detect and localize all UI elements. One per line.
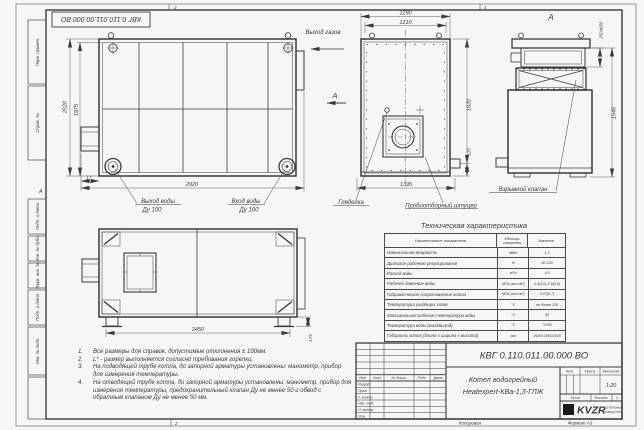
sampling-point-mark: [416, 106, 424, 114]
tech-cell-name: Диапазон рабочего регулирования: [385, 258, 497, 267]
company-logo-mark: [563, 404, 574, 415]
side-label: Справ. №: [35, 113, 40, 133]
label-gas-out: Выход газов: [306, 30, 341, 36]
view-front: [361, 30, 460, 182]
dim-front-width: 1395: [400, 182, 413, 188]
tech-row: Рабочее давление воды МПа (кгс/см²) 0,3(…: [385, 278, 565, 288]
side-label: Инв. № дубл.: [35, 235, 40, 261]
sheets-value: 1: [616, 395, 618, 400]
tech-cell-name: Габариты котла (длина х ширина х высота): [385, 331, 497, 340]
tech-cell-unit: °С: [497, 321, 528, 330]
burner-flange: [81, 127, 99, 151]
view-side: [82, 229, 305, 327]
tech-cell-name: Рабочее давление воды: [385, 279, 497, 288]
tech-table-title: Техническая характеристика: [384, 221, 564, 230]
dim-front-top-outer: 1290: [399, 11, 412, 17]
dim-burner-length: L*: [87, 176, 93, 182]
note-item: 1. Все размеры для справок, допустимые о…: [74, 349, 352, 357]
tech-cell-name: Температура уходящих газов: [385, 300, 497, 309]
dim-valve-size: 250х600: [599, 21, 604, 40]
dim-front-top-inner: 1210: [399, 20, 412, 26]
tech-row: Температура уходящих газов °С не более 2…: [385, 299, 565, 309]
role-utv: Утв.: [358, 414, 366, 418]
col-docnum: № докум.: [392, 376, 407, 380]
tech-table: Наименование показателя Единицы измерени…: [384, 233, 566, 342]
tech-cell-value: 2920х1395х2020: [528, 331, 565, 340]
sight-glass: [385, 108, 390, 113]
doc-name-line2: Heatexpert-КВа-1,3-ГЛЖ: [463, 387, 544, 396]
lit-label: Лит.: [565, 369, 574, 373]
doc-number: КВГ 0.110.011.00.000 ВО: [480, 351, 589, 362]
tech-header-name: Наименование показателя: [385, 234, 496, 247]
view-rear: [81, 33, 304, 176]
dim-side-length: 2450: [191, 327, 205, 333]
dim-front-height: 1820: [467, 98, 473, 111]
support-leg: [102, 317, 294, 327]
corner-bolt: [107, 42, 294, 54]
tech-cell-unit: МВт: [497, 248, 528, 257]
tech-cell-unit: м³/ч: [497, 269, 528, 278]
tech-row: Максимальная рабочая температура воды °С…: [385, 309, 565, 319]
explosion-valve: [516, 68, 586, 90]
section-title: А: [547, 13, 553, 22]
label-sight-glass: Гляделка: [338, 200, 364, 206]
tech-cell-value: не более 220: [528, 300, 565, 309]
dim-rear-height-outer: 2020: [63, 100, 69, 114]
tech-cell-name: Максимальная рабочая температура воды: [385, 310, 497, 319]
tech-row: Гидравлическое сопротивление котла МПа (…: [385, 289, 565, 299]
lifting-lug: [437, 33, 442, 38]
tech-cell-name: Расход воды: [385, 269, 497, 278]
lifting-lug: [579, 33, 584, 38]
tech-cell-unit: °С: [497, 310, 528, 319]
tech-header-row: Наименование показателя Единицы измерени…: [385, 234, 565, 247]
corner-gusset: [102, 232, 294, 314]
flue-outlet: [296, 51, 304, 90]
col-izm: Изм.: [359, 376, 366, 380]
tech-cell-name: Номинальная мощность: [385, 248, 497, 257]
lifting-lug: [108, 33, 114, 39]
scale-value: 1:20: [606, 383, 618, 389]
tech-cell-value: 0,3(3,0)-0,6(6,0): [528, 279, 565, 288]
tech-cell-unit: МПа (кгс/см²): [497, 279, 528, 288]
note-text: На отводящей трубе котла, до запорной ар…: [93, 380, 352, 403]
view-arrow-letter: А: [331, 91, 337, 100]
note-item: 3. На подводящей трубе котла, до запорно…: [74, 364, 352, 379]
role-labels: Разраб. Пров. Т. контр. Нач. отд. Н. кон…: [358, 383, 374, 419]
rear-collector: [297, 238, 305, 309]
zone-mark-bottom: 2: [174, 421, 178, 426]
note-number: 2.: [74, 357, 93, 365]
note-text: Все размеры для справок, допустимые откл…: [93, 349, 352, 357]
tech-row: Диапазон рабочего регулирования % 40-100: [385, 257, 565, 267]
tech-row: Температура воды (вход/выход) °С 70/95: [385, 320, 565, 330]
tech-cell-value: 95: [528, 310, 565, 319]
note-number: 4.: [74, 380, 93, 403]
burner-door: [383, 116, 423, 157]
sheet-label: Лист: [570, 396, 580, 400]
tech-cell-unit: мм: [497, 331, 528, 340]
view-section: [496, 33, 592, 177]
doc-name-line1: Котел водогрейный: [469, 375, 537, 384]
tech-header-value: Значение: [527, 234, 564, 247]
format-label: Формат А3: [568, 421, 593, 426]
role-nkontr: Н. контр.: [358, 408, 374, 412]
scale-label: Масштаб: [603, 369, 621, 373]
lifting-lug: [370, 33, 375, 38]
stamp-number: КВГ 0.110.011.00.000 ВО: [60, 15, 140, 22]
label-explosion-valve: Взрывной клапан: [499, 186, 548, 193]
tech-cell-name: Температура воды (вход/выход): [385, 321, 497, 330]
label-water-out: Выход воды: [141, 199, 175, 205]
tech-row: Номинальная мощность МВт 1,3: [385, 247, 565, 257]
burner-flange-side: [82, 259, 99, 282]
company-line1: КОТЕЛЬНЫЙ: [604, 406, 624, 410]
label-sampling: Пробоотборный штуцер: [405, 202, 477, 209]
dim-rear-width: 2920: [185, 182, 199, 188]
note-number: 3.: [74, 364, 93, 379]
tech-row: Габариты котла (длина х ширина х высота)…: [385, 330, 565, 340]
tech-cell-value: 1,3: [528, 248, 565, 257]
label-water-in: Вход воды: [231, 199, 261, 205]
notes-list: 1. Все размеры для справок, допустимые о…: [74, 349, 352, 403]
dim-side-base: 175: [308, 334, 313, 342]
dim-rear-height-inner: 1975: [74, 103, 80, 116]
note-item: 4. На отводящей трубе котла, до запорной…: [74, 380, 352, 403]
access-door: [124, 253, 156, 292]
tech-cell-unit: %: [497, 258, 528, 267]
tech-cell-name: Гидравлическое сопротивление котла: [385, 290, 497, 299]
side-label: Перв. примен.: [35, 38, 40, 67]
col-list: Лист: [372, 376, 382, 380]
role-tkontr: Т. контр.: [358, 395, 374, 399]
mass-label: Масса: [585, 369, 596, 373]
tech-cell-unit: МПа (кгс/см²): [497, 290, 528, 299]
dim-section-height: 1540: [612, 106, 618, 119]
valve-leader: [489, 80, 576, 193]
side-label: Инв. № подл.: [35, 338, 40, 365]
tech-cell-value: 4,5: [528, 269, 565, 278]
company-line2: ЗАВОД РЭП: [604, 410, 622, 414]
zone-mark-top-left: 2: [173, 5, 177, 10]
role-nachotd: Нач. отд.: [358, 402, 374, 406]
label-water-out-dn: Ду 100: [142, 208, 163, 214]
label-water-in-dn: Ду 100: [239, 208, 260, 214]
pipe-stub: [496, 158, 508, 167]
zone-letter-left: А: [38, 189, 43, 195]
company-logo-text: KVZR: [577, 405, 606, 417]
tech-row: Расход воды м³/ч 4,5: [385, 268, 565, 278]
tech-header-unit: Единицы измерения: [496, 234, 527, 247]
water-flange: [105, 159, 295, 175]
role-prov: Пров.: [358, 389, 367, 393]
tech-cell-value: 0,07(0,7): [528, 290, 565, 299]
side-label: Взам. инв. №: [35, 262, 40, 289]
side-column-labels: Перв. примен. Справ. № Подп. и дата Инв.…: [35, 38, 40, 365]
side-label: Подп. и дата: [35, 293, 40, 321]
drawing-sheet: { "frame": { "side_column": ["Перв. прим…: [0, 0, 644, 430]
tech-cell-value: 40-100: [528, 258, 565, 267]
tech-cell-unit: °С: [497, 300, 528, 309]
copied-label: Копировал: [459, 421, 482, 426]
role-razrab: Разраб.: [358, 383, 371, 387]
tech-cell-value: 70/95: [528, 321, 565, 330]
lifting-lug: [519, 33, 524, 38]
note-text: На подводящей трубе котла, до запорной а…: [93, 364, 352, 379]
sampling-stub: [450, 159, 460, 168]
dim-front-bottom-offset: 125: [467, 148, 472, 156]
lifting-lug: [285, 33, 291, 39]
side-label: Подп. и дата: [35, 202, 40, 230]
col-data: Дата: [433, 376, 443, 380]
zone-mark-top-right: 1: [484, 5, 487, 10]
col-podp: Подп.: [417, 376, 426, 380]
sheets-label: Листов: [593, 396, 607, 400]
note-number: 1.: [74, 349, 93, 357]
